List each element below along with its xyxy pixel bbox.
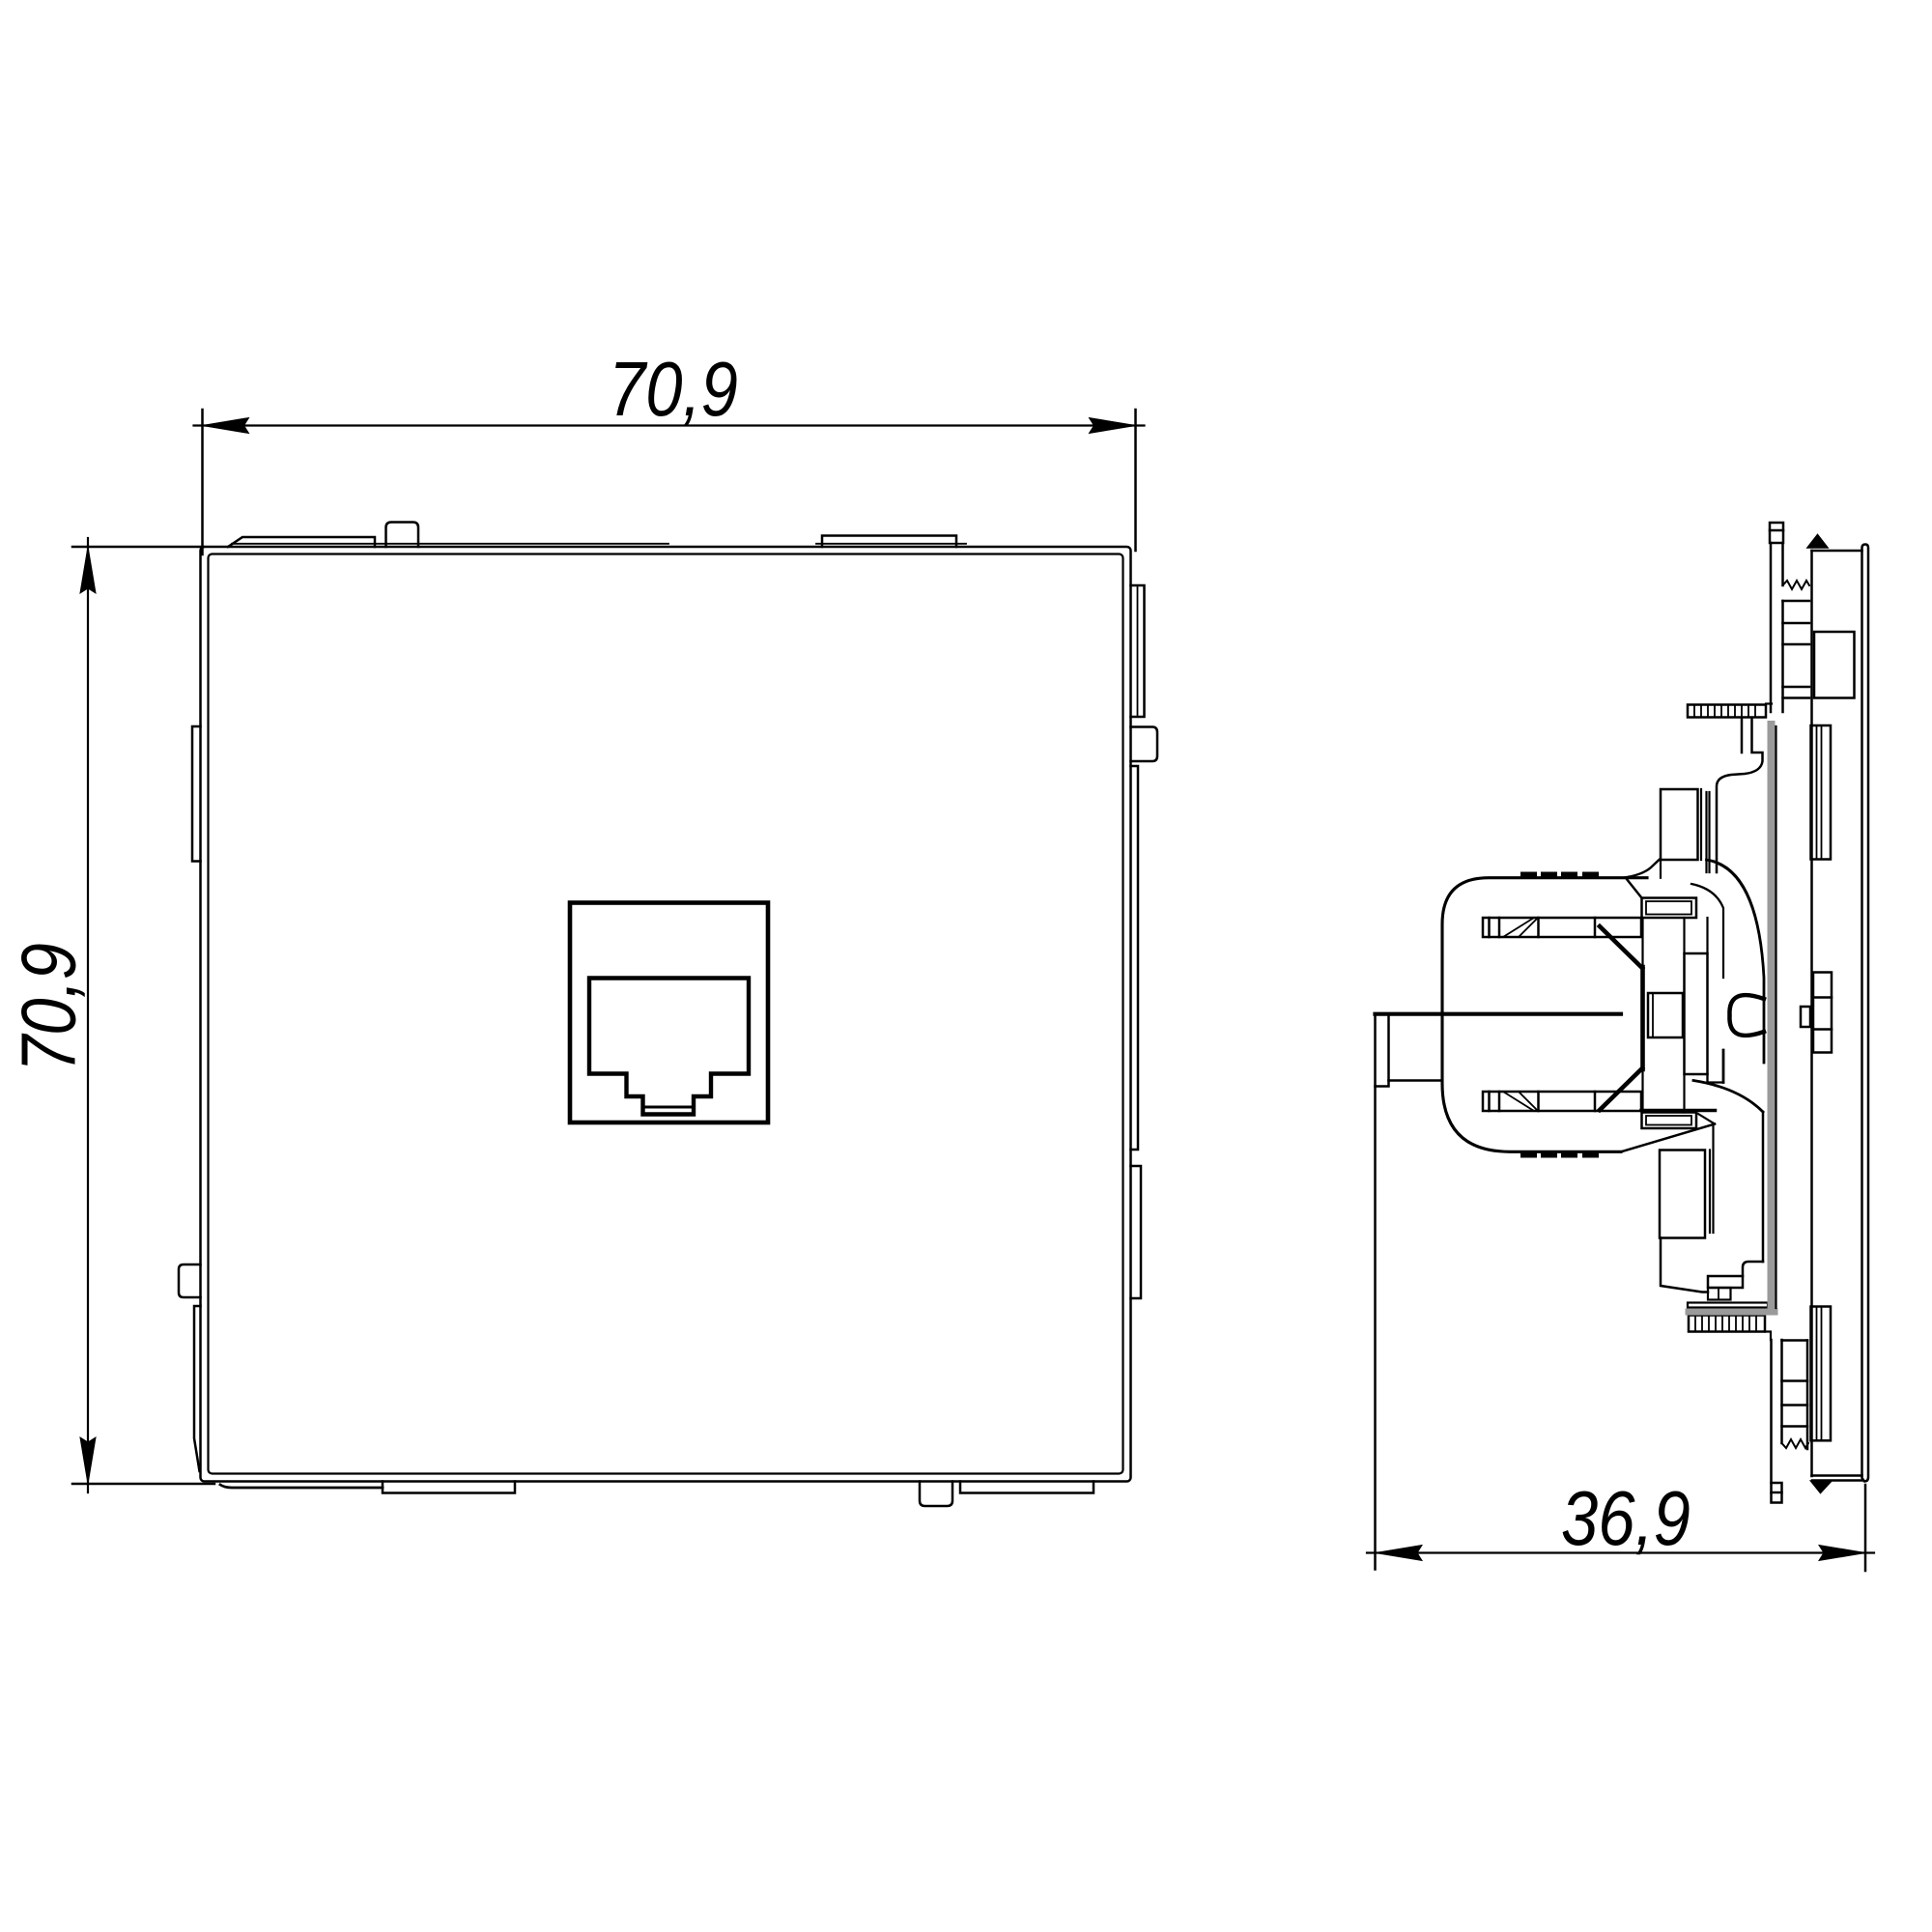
- svg-text:70,9: 70,9: [609, 345, 738, 432]
- svg-text:70,9: 70,9: [5, 943, 92, 1072]
- svg-text:36,9: 36,9: [1561, 1474, 1690, 1561]
